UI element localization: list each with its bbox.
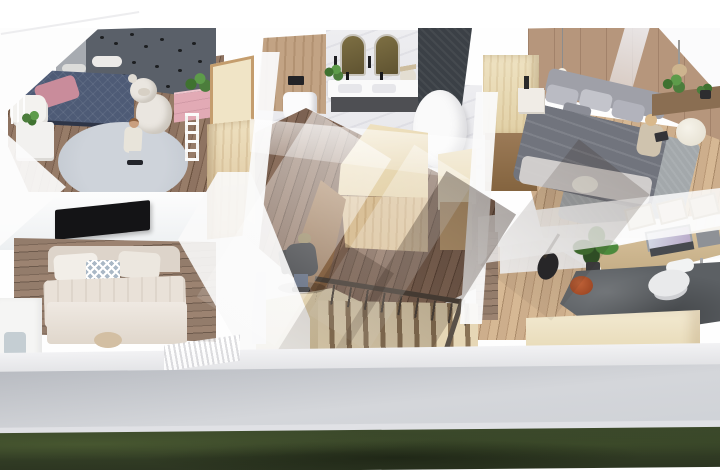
dresser-plant — [182, 72, 212, 94]
faucet-left — [346, 72, 349, 80]
kids-round-rug — [58, 122, 188, 202]
guest-bed-pillow-right — [117, 251, 161, 280]
guest-bed-pouf — [94, 332, 122, 348]
vanity-plant — [320, 64, 346, 82]
nightstand-lamp — [524, 76, 529, 89]
shelf-planter — [700, 90, 711, 99]
vase-branches — [400, 56, 416, 80]
cloud-shelf — [92, 56, 122, 67]
master-pouf — [676, 118, 706, 146]
child-figure-head — [129, 118, 139, 128]
child-figure-body — [123, 127, 142, 154]
sconce-right — [368, 56, 371, 68]
pendant-rattan — [678, 40, 680, 66]
roof-top-band — [0, 0, 720, 28]
nightstand — [518, 88, 544, 112]
teddy-bear-muzzle — [138, 88, 150, 96]
grass-strip — [0, 427, 720, 470]
cutaway-house-render — [0, 0, 720, 470]
arched-mirror-right — [374, 34, 400, 76]
faucet-right — [380, 72, 383, 80]
paw-print-decals — [100, 36, 104, 39]
child-figure-shoes — [127, 160, 143, 165]
flush-plate — [288, 76, 304, 85]
sitting-person-head — [645, 114, 657, 126]
shelf-plant-1 — [658, 74, 686, 94]
vanity-basin-left — [338, 84, 362, 93]
pendant-cord — [562, 28, 563, 70]
teddy-bear-ear — [128, 74, 137, 83]
vanity-base — [331, 97, 426, 112]
vanity-basin-right — [372, 84, 396, 93]
kids-table-plant — [20, 110, 42, 126]
kids-ladder — [185, 113, 199, 161]
